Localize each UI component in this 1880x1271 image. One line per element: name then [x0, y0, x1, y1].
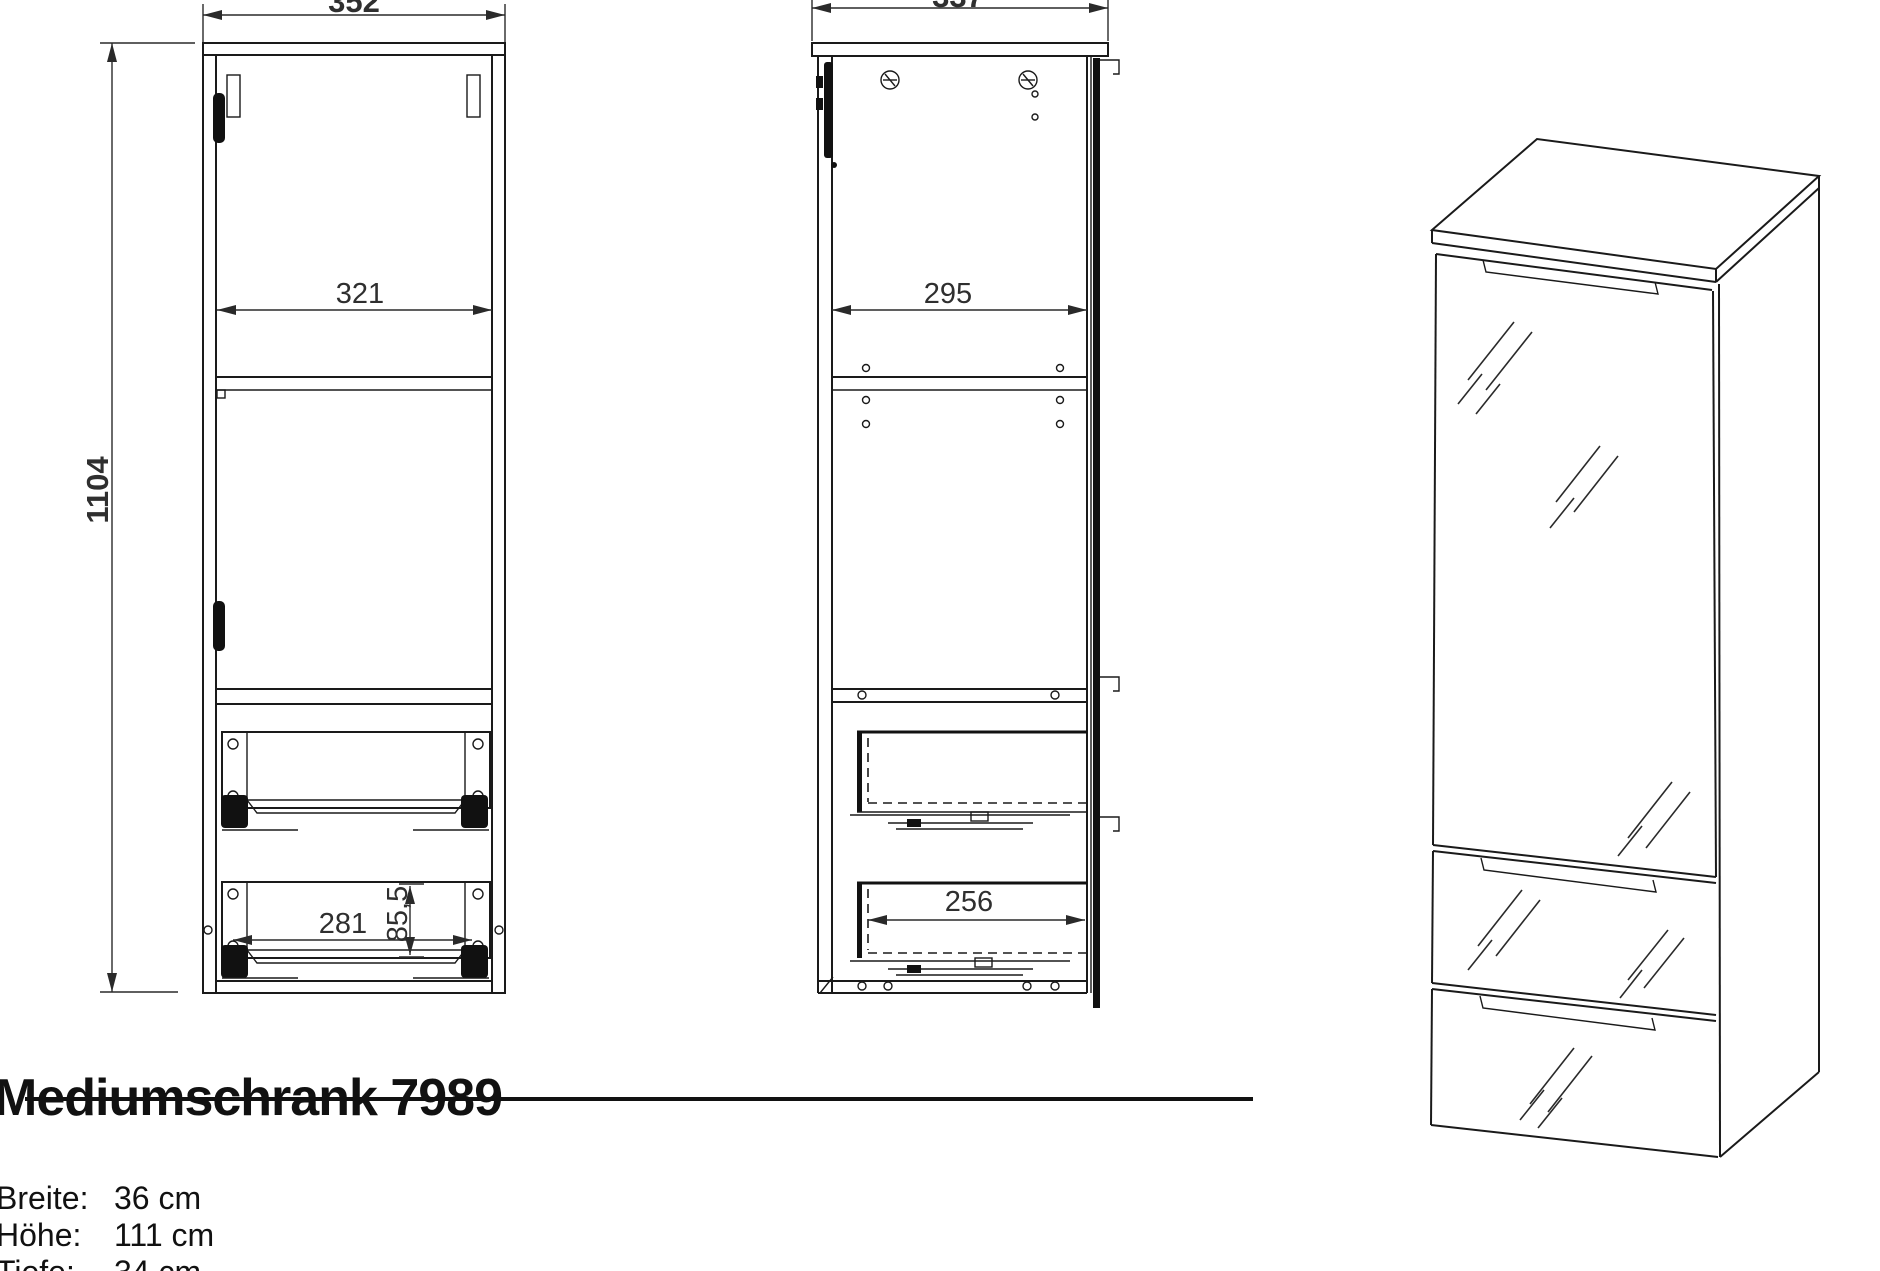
dim-front-width: 352 — [203, 0, 505, 42]
mirror-hatch-marks — [1458, 322, 1690, 1128]
spec-value-hoehe: 111 cm — [114, 1217, 214, 1254]
dim-label-side-drawer-depth: 256 — [945, 886, 993, 918]
dim-label-drawer-width: 281 — [319, 908, 367, 940]
spec-row-breite: Breite: 36 cm — [0, 1180, 214, 1217]
spec-label-hoehe: Höhe: — [0, 1217, 114, 1254]
cam-screw-left — [881, 71, 899, 89]
hinge-middle — [213, 601, 225, 651]
persp-drawer-2 — [1431, 989, 1718, 1157]
dim-side-drawer-depth: 256 — [868, 886, 1085, 925]
spec-label-breite: Breite: — [0, 1180, 114, 1217]
side-view: 337 295 256 — [812, 0, 1119, 1008]
persp-door — [1433, 254, 1716, 877]
spec-label-tiefe: Tiefe: — [0, 1254, 114, 1271]
spec-value-breite: 36 cm — [114, 1180, 214, 1217]
front-shelf — [216, 377, 492, 398]
dim-height: 1104 — [80, 43, 195, 992]
dim-front-inner-width: 321 — [217, 278, 492, 315]
side-drawer-1 — [850, 732, 1087, 829]
persp-top-panel — [1432, 139, 1819, 269]
side-top-panel — [812, 43, 1108, 56]
spec-list: Breite: 36 cm Höhe: 111 cm Tiefe: 34 cm — [0, 1180, 214, 1271]
side-hinge — [816, 62, 837, 168]
front-drawer-1 — [221, 732, 490, 830]
dim-label-side-inner-depth: 295 — [924, 278, 972, 310]
hinge-top — [213, 93, 225, 143]
technical-drawing-page: 352 1104 321 281 — [0, 0, 1880, 1271]
dim-drawer-width: 281 — [233, 908, 472, 945]
product-title: Mediumschrank 7989 — [0, 1068, 502, 1128]
dim-label-side-depth: 337 — [932, 0, 984, 14]
dim-side-depth: 337 — [812, 0, 1108, 41]
dim-side-inner-depth: 295 — [832, 278, 1087, 315]
hinge-plate-left — [227, 75, 240, 117]
persp-drawer-1 — [1432, 851, 1716, 1015]
hinge-plate-right — [467, 75, 480, 117]
dim-label-height: 1104 — [80, 456, 115, 524]
dim-drawer-height: 85,5 — [382, 884, 424, 957]
front-view: 352 1104 321 281 — [80, 0, 505, 993]
spec-value-tiefe: 34 cm — [114, 1254, 214, 1271]
dim-label-front-inner-width: 321 — [336, 278, 384, 310]
spec-row-hoehe: Höhe: 111 cm — [0, 1217, 214, 1254]
spec-row-tiefe: Tiefe: 34 cm — [0, 1254, 214, 1271]
side-door-section — [1093, 58, 1100, 1008]
perspective-view — [1431, 139, 1819, 1157]
dim-label-front-width: 352 — [328, 0, 380, 19]
dim-label-drawer-height: 85,5 — [382, 886, 414, 942]
side-shelf — [832, 365, 1087, 428]
cam-screw-right — [1019, 71, 1037, 89]
front-cabinet-outline — [203, 43, 505, 993]
